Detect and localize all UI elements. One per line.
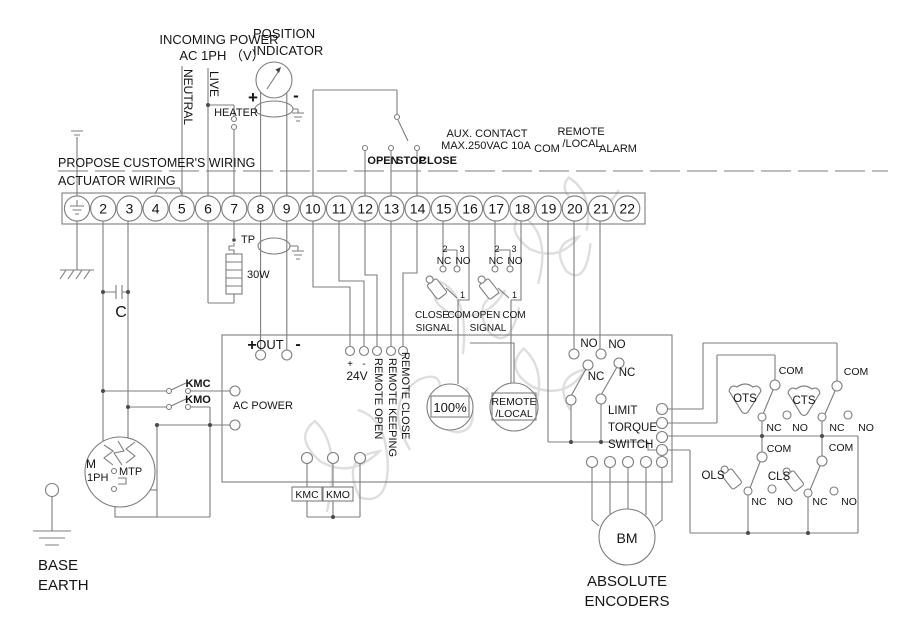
close-label: CLOSE [419, 155, 457, 167]
tp-label: TP [241, 234, 255, 246]
terminal-label: 18 [515, 201, 531, 217]
remote-label: REMOTE [557, 126, 604, 138]
terminal-label: 6 [204, 201, 212, 217]
position-indicator-label: POSITION [253, 26, 315, 41]
ac-power-terminal [230, 420, 240, 430]
kmc-contact-label: KMC [185, 378, 210, 390]
v24-minus-terminal [360, 347, 369, 356]
terminal-label: 14 [410, 201, 426, 217]
aux-com: COM [447, 310, 470, 321]
terminal-label: 5 [178, 201, 186, 217]
cls-label: CLS [768, 471, 791, 483]
wiring-diagram-page: 2345678910111213141516171819202122 INCOM… [0, 0, 900, 636]
terminal-label: 13 [384, 201, 400, 217]
ols-no: NO [777, 496, 793, 508]
tp-junction [232, 238, 236, 242]
aux-no: NO [508, 256, 523, 267]
limit-switch-terminal [657, 432, 668, 443]
aux-com: COM [502, 310, 525, 321]
ac-power-terminal [230, 386, 240, 396]
limit-switch-terminal [657, 404, 668, 415]
ols-label: OLS [701, 470, 724, 482]
remote-open-label: REMOTE OPEN [372, 358, 384, 439]
aux-n3: 3 [459, 244, 464, 254]
kmc-contact [167, 389, 172, 394]
cts-no-terminal [844, 411, 852, 419]
open-contact [363, 146, 368, 151]
cts-nc-terminal [818, 413, 826, 421]
ac-power-label: AC POWER [233, 400, 293, 412]
terminal-label: 8 [257, 201, 265, 217]
terminal-label: 11 [332, 201, 347, 217]
ots-com: COM [779, 365, 804, 377]
encoder-terminal [605, 457, 616, 468]
terminal-label: 4 [152, 201, 160, 217]
stop-contact [389, 146, 394, 151]
out-label: OUT [256, 337, 284, 352]
terminal-earth [64, 196, 89, 221]
v24-label: 24V [346, 369, 367, 383]
ols-nc-terminal [744, 487, 752, 495]
position-indicator-gauge [256, 62, 292, 98]
aux-n3: 3 [511, 244, 516, 254]
cts-com: COM [844, 366, 869, 378]
ols-com-terminal [757, 452, 767, 462]
limit-switch-terminal [657, 418, 668, 429]
coil-terminal [328, 453, 339, 464]
remote-keeping-terminal [387, 347, 396, 356]
open-signal-label: OPEN [472, 310, 500, 321]
terminal-label: 15 [436, 201, 452, 217]
watts-label: 30W [247, 269, 270, 281]
motor-m-label: M [86, 457, 96, 471]
micro-switch-icon [475, 273, 500, 300]
terminal-label: 10 [305, 201, 321, 217]
aux-contact-label: AUX. CONTACT [446, 128, 527, 140]
percent-label: 100% [433, 400, 467, 415]
plus-sign: + [248, 88, 258, 107]
nc-contact [583, 360, 593, 370]
limit-torque-label: TORQUE [608, 422, 657, 434]
ots-com-terminal [770, 380, 780, 390]
cls-no-terminal [830, 487, 838, 495]
com-label: COM [534, 143, 560, 155]
terminal-label: 7 [230, 201, 238, 217]
aux-n2: 2 [494, 244, 499, 254]
limit-torque-label: LIMIT [608, 405, 637, 417]
v24-plus-terminal [346, 347, 355, 356]
close-signal-label: CLOSE [415, 310, 449, 321]
mtp-label: MTP [119, 466, 142, 478]
local-label: /LOCAL [562, 138, 601, 150]
ols-nc: NC [751, 496, 767, 508]
absolute-encoders-label: ABSOLUTE [587, 573, 667, 590]
encoder-terminal [623, 457, 634, 468]
absolute-encoders-label: ENCODERS [584, 593, 669, 610]
minus-sign: - [293, 86, 299, 105]
remote-keeping-label: REMOTE KEEPING [386, 358, 398, 457]
aux-n2: 2 [442, 244, 447, 254]
ols-no-terminal [768, 485, 776, 493]
no-contact [569, 349, 579, 359]
ots-no: NO [792, 422, 808, 434]
cts-label: CTS [793, 395, 816, 407]
cls-nc-terminal [804, 489, 812, 497]
aux-no: NO [456, 256, 471, 267]
terminal-label: 9 [283, 201, 291, 217]
customer-wiring-label: PROPOSE CUSTOMER'S WIRING [58, 156, 255, 170]
ots-nc-terminal [758, 413, 766, 421]
aux-nc: NC [489, 256, 503, 267]
bm-label: BM [617, 530, 638, 546]
kmo-coil-label: KMO [326, 489, 350, 501]
cts-com-terminal [832, 381, 842, 391]
out-minus: - [295, 336, 300, 353]
heater-resistor-30w [226, 254, 242, 294]
terminal-label: 22 [619, 201, 635, 217]
cls-com-terminal [817, 456, 827, 466]
open-signal-label: SIGNAL [470, 323, 507, 334]
base-earth-terminal [46, 484, 59, 497]
indicator-lamp-lower [258, 238, 290, 254]
limit-torque-label: SWITCH [608, 439, 653, 451]
terminal-label: 3 [126, 201, 134, 217]
switch-common [566, 395, 576, 405]
encoder-terminal [587, 457, 598, 468]
micro-switch-icon [423, 273, 448, 300]
heater-contact [232, 125, 237, 130]
ots-nc: NC [766, 422, 782, 434]
terminal-strip: 2345678910111213141516171819202122 [64, 196, 639, 221]
actuator-wiring-diagram: 2345678910111213141516171819202122 INCOM… [0, 0, 900, 636]
cls-nc: NC [812, 496, 828, 508]
position-indicator-label: INDICATOR [253, 43, 323, 58]
alarm-label: ALARM [599, 143, 637, 155]
live-label: LIVE [207, 71, 221, 97]
base-earth-label: EARTH [38, 577, 89, 594]
remote-open-terminal [373, 347, 382, 356]
cts-no: NO [858, 422, 874, 434]
kmo-contact-label: KMO [185, 394, 211, 406]
heater-label: HEATER [214, 107, 258, 119]
ots-label: OTS [733, 393, 757, 405]
incoming-power-voltage: AC 1PH （V） [179, 48, 264, 63]
terminal-label: 12 [357, 201, 373, 217]
cls-com: COM [829, 442, 854, 454]
open-label: OPEN [367, 155, 398, 167]
no-contact [596, 349, 606, 359]
aux-nc: NC [437, 256, 451, 267]
ols-com: COM [767, 443, 792, 455]
terminal-label: 21 [593, 201, 609, 217]
motor-phase-label: 1PH [87, 472, 108, 484]
neutral-label: NEUTRAL [181, 69, 195, 125]
capacitor-label: C [115, 304, 127, 321]
remote-local-label: /LOCAL [495, 408, 533, 420]
switch-common [596, 394, 606, 404]
terminal-label: 20 [567, 201, 583, 217]
encoder-terminal [657, 457, 668, 468]
nc-label: NC [619, 367, 636, 379]
no-label: NO [580, 338, 597, 350]
terminal-label: 16 [462, 201, 478, 217]
terminal-label: 17 [488, 201, 504, 217]
remote-close-label: REMOTE CLOSE [399, 352, 411, 439]
encoder-terminal [641, 457, 652, 468]
terminal-label: 2 [99, 201, 107, 217]
cts-nc: NC [829, 422, 845, 434]
coil-terminal [355, 453, 366, 464]
kmc-coil-label: KMC [295, 489, 319, 501]
close-signal-label: SIGNAL [416, 323, 453, 334]
remote-local-label: REMOTE [492, 396, 537, 408]
out-plus: + [247, 337, 256, 354]
terminal-label: 19 [541, 201, 557, 217]
actuator-wiring-label: ACTUATOR WIRING [58, 174, 176, 188]
ots-no-terminal [783, 411, 791, 419]
coil-terminal [302, 453, 313, 464]
nc-label: NC [588, 371, 605, 383]
aux-rating-label: MAX.250VAC 10A [441, 140, 531, 152]
close-contact [415, 146, 420, 151]
selector-pivot [395, 115, 400, 120]
kmo-contact [167, 405, 172, 410]
aux-n1: 1 [512, 290, 517, 300]
aux-n1: 1 [460, 290, 465, 300]
base-earth-label: BASE [38, 557, 78, 574]
cls-no: NO [841, 496, 857, 508]
limit-switch-terminal [657, 445, 668, 456]
no-label: NO [608, 339, 625, 351]
